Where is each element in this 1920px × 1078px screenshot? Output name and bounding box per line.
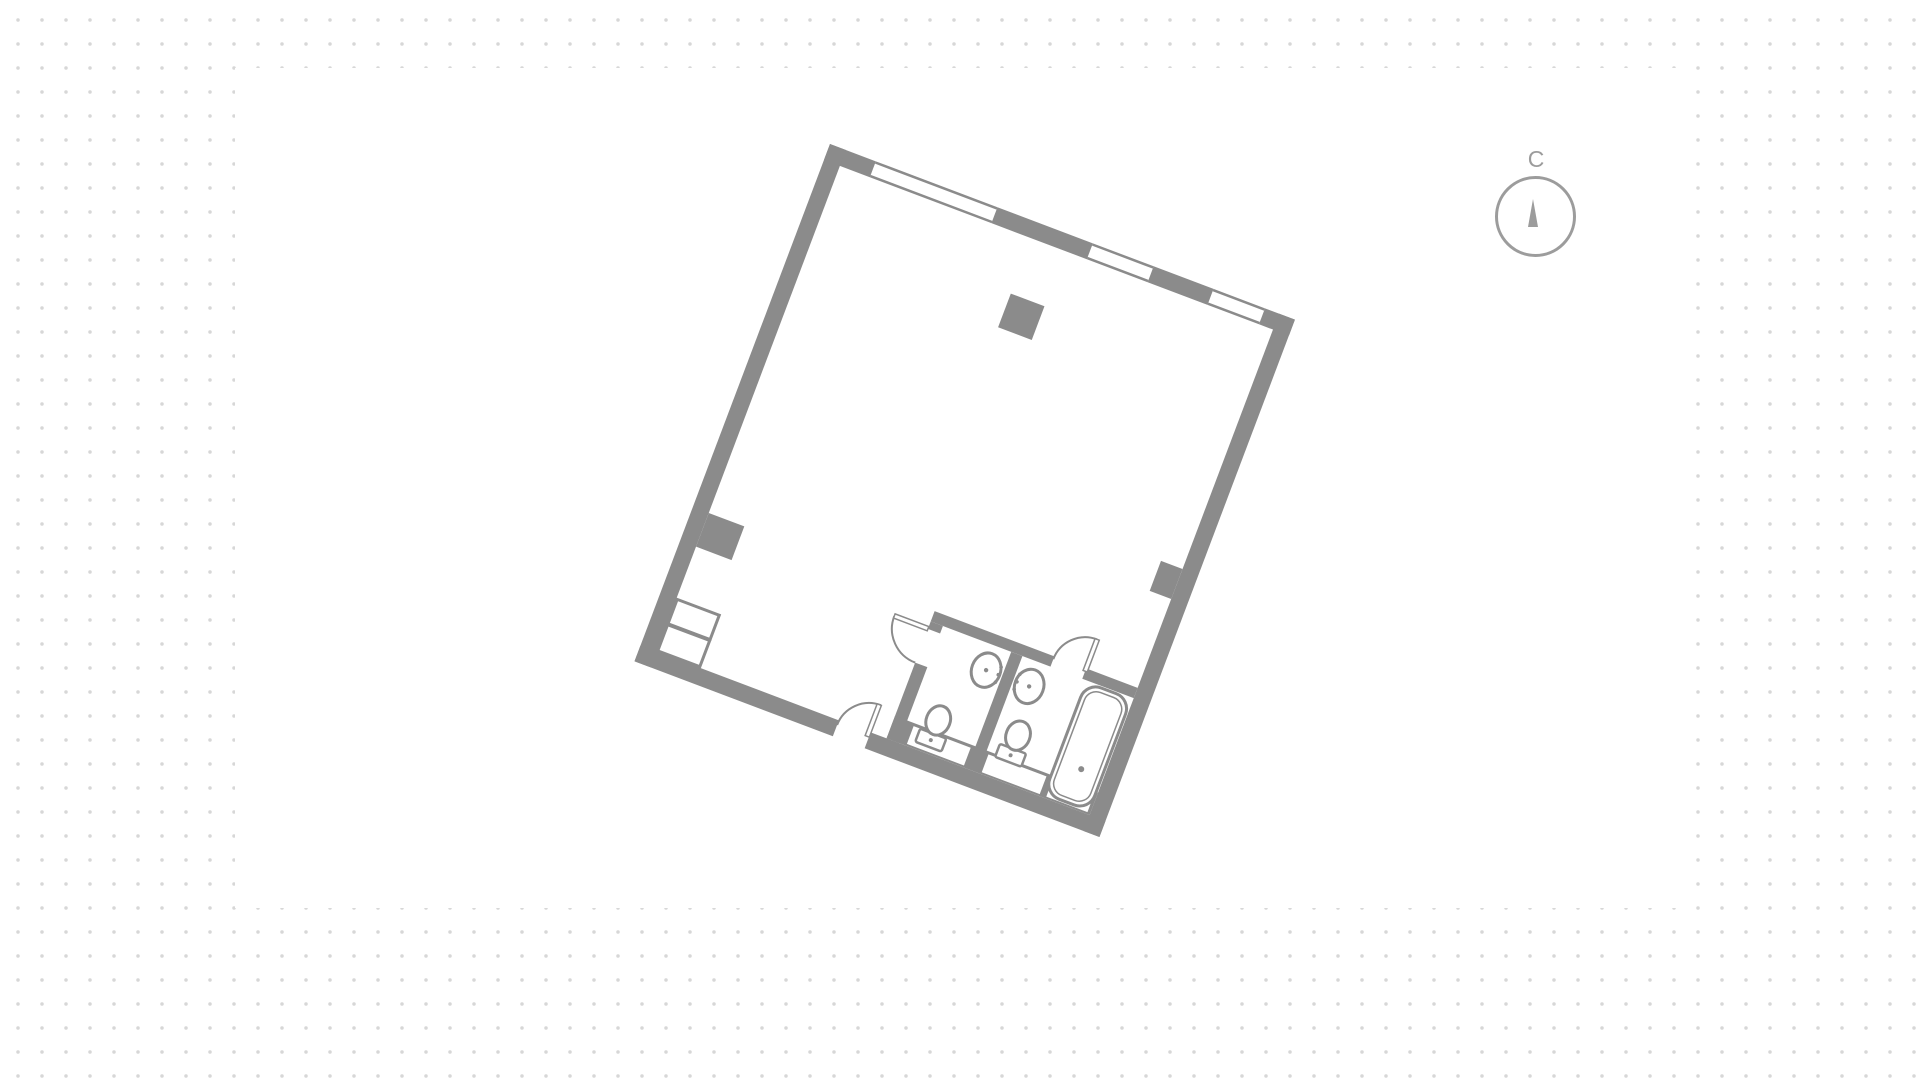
compass-north-label: С <box>1516 147 1556 171</box>
window-icon <box>1087 257 1149 282</box>
compass-needle-icon <box>1528 199 1538 227</box>
toilet-icon <box>995 717 1036 767</box>
entrance-door-leaf <box>865 704 881 737</box>
wc-door-leaf <box>894 614 929 631</box>
structural-column <box>998 294 1044 340</box>
page: С <box>0 0 1920 1078</box>
bathroom-door-leaf <box>1083 639 1099 672</box>
